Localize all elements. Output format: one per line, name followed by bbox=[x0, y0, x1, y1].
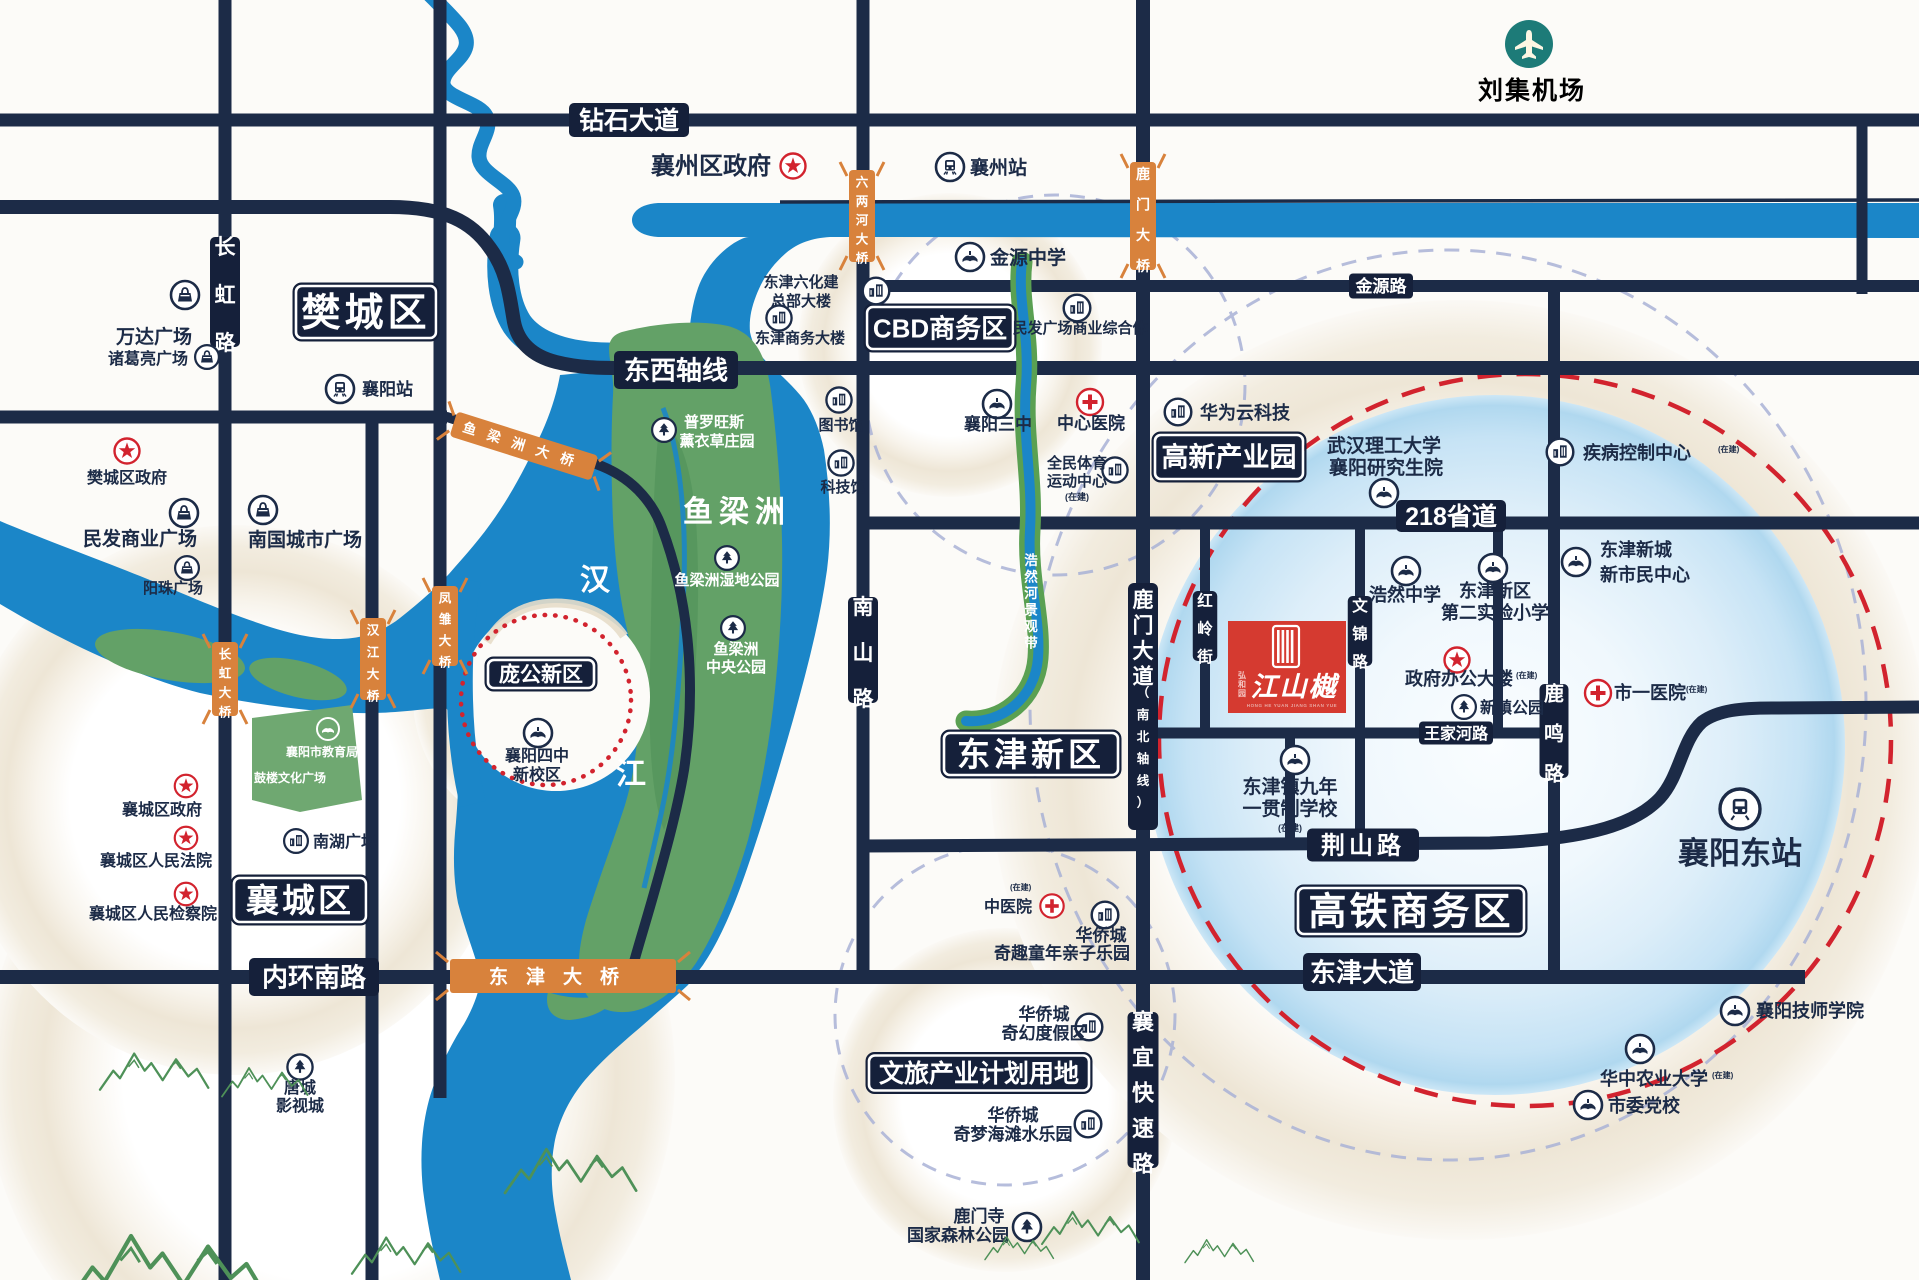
svg-text:中心医院: 中心医院 bbox=[1057, 413, 1125, 433]
svg-text:浩然中学: 浩然中学 bbox=[1369, 584, 1441, 605]
svg-text:鱼梁洲: 鱼梁洲 bbox=[713, 640, 758, 658]
svg-text:东津镇九年: 东津镇九年 bbox=[1242, 775, 1337, 798]
svg-text:东津新区: 东津新区 bbox=[1459, 580, 1531, 601]
svg-text:荆山路: 荆山路 bbox=[1321, 832, 1405, 860]
svg-text:园: 园 bbox=[1238, 689, 1246, 698]
svg-text:新校区: 新校区 bbox=[513, 765, 561, 784]
svg-text:民发商业广场: 民发商业广场 bbox=[83, 527, 197, 550]
svg-text:一贯制学校: 一贯制学校 bbox=[1242, 797, 1338, 820]
svg-text:新市民中心: 新市民中心 bbox=[1600, 564, 1690, 585]
svg-text:襄阳站: 襄阳站 bbox=[361, 379, 413, 399]
svg-text:南山路: 南山路 bbox=[853, 595, 875, 711]
svg-text:CBD商务区: CBD商务区 bbox=[873, 313, 1007, 343]
svg-text:文旅产业计划用地: 文旅产业计划用地 bbox=[879, 1059, 1079, 1088]
svg-text:中央公园: 中央公园 bbox=[706, 658, 766, 676]
svg-text:阳珠广场: 阳珠广场 bbox=[143, 579, 203, 597]
svg-text:奇梦海滩水乐园: 奇梦海滩水乐园 bbox=[954, 1124, 1073, 1144]
svg-text:东津六化建: 东津六化建 bbox=[763, 273, 839, 291]
svg-text:长虹路: 长虹路 bbox=[215, 236, 237, 355]
svg-text:(在建): (在建) bbox=[1516, 670, 1538, 680]
svg-text:襄阳研究生院: 襄阳研究生院 bbox=[1328, 456, 1443, 479]
svg-text:奇趣童年亲子乐园: 奇趣童年亲子乐园 bbox=[994, 943, 1130, 963]
svg-text:(在建): (在建) bbox=[1712, 1070, 1734, 1080]
svg-text:运动中心: 运动中心 bbox=[1047, 472, 1107, 490]
svg-text:鱼梁洲: 鱼梁洲 bbox=[683, 495, 791, 529]
svg-text:庞公新区: 庞公新区 bbox=[499, 663, 583, 687]
svg-text:国家森林公园: 国家森林公园 bbox=[907, 1225, 1009, 1245]
svg-text:樊城区政府: 樊城区政府 bbox=[87, 468, 167, 487]
svg-text:华中农业大学: 华中农业大学 bbox=[1600, 1068, 1708, 1089]
svg-text:科技馆: 科技馆 bbox=[820, 478, 865, 496]
svg-text:薰衣草庄园: 薰衣草庄园 bbox=[679, 432, 754, 450]
svg-text:华为云科技: 华为云科技 bbox=[1200, 402, 1291, 423]
svg-text:红岭街: 红岭街 bbox=[1196, 591, 1213, 666]
svg-text:普罗旺斯: 普罗旺斯 bbox=[684, 413, 744, 431]
svg-text:金源路: 金源路 bbox=[1355, 276, 1408, 296]
svg-text:和: 和 bbox=[1238, 679, 1246, 689]
svg-text:内环南路: 内环南路 bbox=[262, 962, 367, 992]
svg-text:刘集机场: 刘集机场 bbox=[1478, 76, 1586, 105]
svg-text:(在建): (在建) bbox=[1278, 822, 1302, 833]
svg-text:218省道: 218省道 bbox=[1405, 502, 1497, 531]
svg-text:六两河大桥: 六两河大桥 bbox=[856, 174, 869, 265]
svg-text:襄城区人民检察院: 襄城区人民检察院 bbox=[88, 904, 217, 923]
svg-text:市委党校: 市委党校 bbox=[1608, 1095, 1681, 1116]
svg-text:弘: 弘 bbox=[1238, 671, 1246, 680]
svg-text:中医院: 中医院 bbox=[984, 897, 1032, 916]
svg-text:东西轴线: 东西轴线 bbox=[624, 355, 728, 385]
svg-text:疾病控制中心: 疾病控制中心 bbox=[1583, 442, 1691, 463]
svg-text:华侨城: 华侨城 bbox=[1019, 1004, 1070, 1024]
svg-text:文锦路: 文锦路 bbox=[1352, 596, 1368, 671]
svg-text:图书馆: 图书馆 bbox=[818, 416, 863, 434]
svg-text:鼓楼文化广场: 鼓楼文化广场 bbox=[254, 770, 326, 785]
svg-text:奇幻度假区: 奇幻度假区 bbox=[1002, 1023, 1087, 1043]
svg-text:鹿门寺: 鹿门寺 bbox=[954, 1206, 1005, 1226]
svg-text:襄城区: 襄城区 bbox=[246, 882, 354, 919]
svg-text:鱼梁洲湿地公园: 鱼梁洲湿地公园 bbox=[674, 571, 779, 589]
svg-text:襄州区政府: 襄州区政府 bbox=[650, 152, 771, 180]
svg-text:江: 江 bbox=[616, 758, 646, 791]
svg-text:全民体育: 全民体育 bbox=[1046, 454, 1107, 472]
svg-text:南湖广场: 南湖广场 bbox=[313, 832, 377, 851]
svg-text:襄阳三中: 襄阳三中 bbox=[963, 414, 1032, 434]
svg-text:江山樾: 江山樾 bbox=[1251, 672, 1341, 702]
svg-text:华侨城: 华侨城 bbox=[1076, 925, 1127, 945]
svg-text:襄阳四中: 襄阳四中 bbox=[504, 746, 569, 765]
svg-text:华侨城: 华侨城 bbox=[988, 1105, 1039, 1125]
svg-text:诸葛亮广场: 诸葛亮广场 bbox=[108, 349, 188, 368]
svg-text:王家河路: 王家河路 bbox=[1424, 724, 1489, 743]
svg-text:(在建): (在建) bbox=[1718, 444, 1740, 454]
svg-text:市一医院: 市一医院 bbox=[1614, 682, 1686, 703]
svg-text:东津商务大楼: 东津商务大楼 bbox=[755, 329, 845, 347]
svg-text:襄阳东站: 襄阳东站 bbox=[1678, 836, 1802, 871]
svg-text:东津大桥: 东津大桥 bbox=[489, 965, 637, 988]
svg-text:高铁商务区: 高铁商务区 bbox=[1308, 892, 1513, 934]
svg-text:樊城区: 樊城区 bbox=[301, 292, 430, 335]
svg-text:东津新区: 东津新区 bbox=[957, 736, 1105, 773]
svg-text:HONG HE YUAN JIANG SHAN YUE: HONG HE YUAN JIANG SHAN YUE bbox=[1247, 703, 1338, 708]
svg-text:襄州站: 襄州站 bbox=[969, 156, 1027, 179]
svg-text:钻石大道: 钻石大道 bbox=[579, 106, 679, 135]
svg-text:襄阳市教育局: 襄阳市教育局 bbox=[285, 744, 358, 759]
svg-text:襄阳技师学院: 襄阳技师学院 bbox=[1755, 1000, 1864, 1021]
svg-text:新镇公园: 新镇公园 bbox=[1480, 698, 1544, 717]
svg-text:南国城市广场: 南国城市广场 bbox=[248, 528, 362, 551]
svg-text:鹿鸣路: 鹿鸣路 bbox=[1544, 682, 1565, 786]
svg-text:(在建): (在建) bbox=[1686, 684, 1708, 694]
svg-text:高新产业园: 高新产业园 bbox=[1162, 442, 1297, 473]
svg-text:汉: 汉 bbox=[580, 564, 611, 597]
svg-text:第二实验小学: 第二实验小学 bbox=[1441, 602, 1549, 623]
svg-text:影视城: 影视城 bbox=[276, 1096, 324, 1115]
svg-text:金源中学: 金源中学 bbox=[989, 246, 1066, 269]
svg-text:襄城区人民法院: 襄城区人民法院 bbox=[99, 851, 212, 870]
svg-text:东津大道: 东津大道 bbox=[1310, 957, 1414, 987]
svg-text:(在建): (在建) bbox=[1010, 882, 1032, 892]
svg-text:(在建): (在建) bbox=[1065, 491, 1089, 502]
svg-text:万达广场: 万达广场 bbox=[115, 325, 192, 348]
svg-text:浩然河景观带: 浩然河景观带 bbox=[1024, 553, 1038, 651]
svg-text:东津新城: 东津新城 bbox=[1600, 539, 1672, 560]
svg-text:武汉理工大学: 武汉理工大学 bbox=[1327, 434, 1441, 457]
svg-text:政府办公大楼: 政府办公大楼 bbox=[1405, 668, 1513, 689]
svg-text:民发广场商业综合体: 民发广场商业综合体 bbox=[1012, 319, 1148, 337]
svg-text:襄城区政府: 襄城区政府 bbox=[121, 800, 202, 819]
